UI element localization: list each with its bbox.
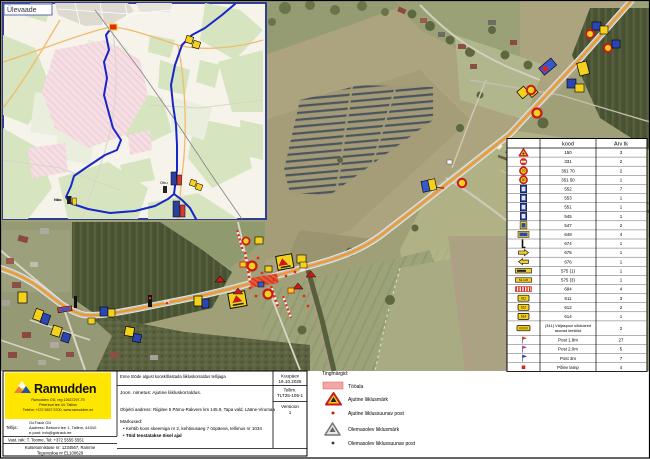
svg-text:553: 553 [564,196,572,201]
svg-text:27: 27 [619,338,624,343]
svg-text:16.10.2025: 16.10.2025 [279,379,302,384]
svg-text:TLT25-105-1: TLT25-105-1 [277,393,304,398]
svg-text:e-post: info@gotrack.ee: e-post: info@gotrack.ee [29,430,72,435]
svg-text:Näo: Näo [54,197,62,202]
svg-text:551: 551 [564,205,572,210]
svg-text:674: 674 [564,241,572,246]
svg-text:Joon. nimetus: Ajutine liiklus: Joon. nimetus: Ajutine liikluskorraldus. [120,390,201,396]
svg-text:Vast. isik: T. Toome, Tel: +3: Vast. isik: T. Toome, Tel: +372 5555 555… [8,438,85,443]
svg-text:Ajutine liiklusmärk: Ajutine liiklusmärk [348,397,389,403]
svg-text:54-145: 54-145 [519,278,529,282]
svg-text:Peterburi tee 44, Tallinn: Peterburi tee 44, Tallinn [39,403,77,407]
svg-text:50: 50 [522,178,526,182]
svg-text:Tellija:: Tellija: [6,425,18,430]
svg-text:Ramudden OÜ, reg 12637297-70: Ramudden OÜ, reg 12637297-70 [31,398,84,402]
svg-text:575 (1): 575 (1) [561,268,575,273]
svg-text:612: 612 [521,306,527,310]
svg-text:Märkused:: Märkused: [120,419,142,425]
svg-text:Tellim.: Tellim. [283,388,296,393]
svg-text:612: 612 [564,305,572,310]
svg-text:Post 1.8m: Post 1.8m [558,338,578,343]
svg-text:Arv tk: Arv tk [614,142,628,148]
svg-text:• Töid teostatakse öisel ajal: • Töid teostatakse öisel ajal [123,433,182,438]
svg-text:Põlev lamp: Põlev lamp [557,365,579,370]
svg-text:asuvad teetööd: asuvad teetööd [555,328,582,333]
svg-text:Kutsetunnistuse nr: 1234567, R: Kutsetunnistuse nr: 1234567, Ramme [25,445,96,450]
svg-text:Post 2.0m: Post 2.0m [558,347,578,352]
svg-text:70: 70 [522,169,526,173]
svg-text:• Kehtib koos skeemiga nr 2,: • Kehtib koos skeemiga nr 2, kehtivusaeg… [123,426,262,431]
svg-text:614: 614 [521,315,527,319]
svg-text:611: 611 [565,296,573,301]
svg-text:351 70: 351 70 [561,168,575,173]
svg-text:Tingmärgid:: Tingmärgid: [322,371,348,377]
svg-text:Tööala: Tööala [348,384,364,390]
svg-text:Telefon +372 5837 5700, www.ra: Telefon +372 5837 5700, www.ramudden.ee [23,408,93,412]
svg-text:Ajutine liiklussuunav post: Ajutine liiklussuunav post [348,411,404,417]
svg-text:150: 150 [564,150,572,155]
svg-text:331: 331 [564,159,572,164]
svg-text:Kuupäev: Kuupäev [281,374,300,379]
svg-text:676: 676 [564,259,572,264]
svg-text:Objekti aadress: Riigitee 5 Pä: Objekti aadress: Riigitee 5 Pärnu-Rakver… [120,407,275,412]
svg-text:611: 611 [521,297,526,301]
svg-text:675: 675 [564,250,572,255]
svg-text:552: 552 [564,187,572,192]
svg-text:Tegevusloa nr EL100629: Tegevusloa nr EL100629 [37,451,84,456]
svg-text:Post 3m: Post 3m [560,356,576,361]
svg-text:648: 648 [564,232,572,237]
svg-text:Olemasolev liiklusmärk: Olemasolev liiklusmärk [348,427,400,433]
svg-text:575 (3): 575 (3) [561,278,575,283]
svg-text:Enne tööde algust kooskõlastad: Enne tööde algust kooskõlastada liiklusk… [120,374,226,379]
svg-text:Olemasolev liiklussuunav post: Olemasolev liiklussuunav post [348,441,416,447]
svg-text:547: 547 [564,223,572,228]
svg-text:614: 614 [564,314,572,319]
svg-text:351 50: 351 50 [561,177,575,182]
svg-text:Versioon: Versioon [281,404,299,409]
svg-text:545: 545 [564,214,572,219]
svg-text:684: 684 [564,287,572,292]
svg-text:Ülevaade: Ülevaade [7,6,37,14]
svg-text:kood: kood [562,142,574,148]
svg-text:1: 1 [289,410,292,415]
svg-text:Ramudden: Ramudden [34,382,96,396]
svg-text:Obu: Obu [160,180,168,185]
